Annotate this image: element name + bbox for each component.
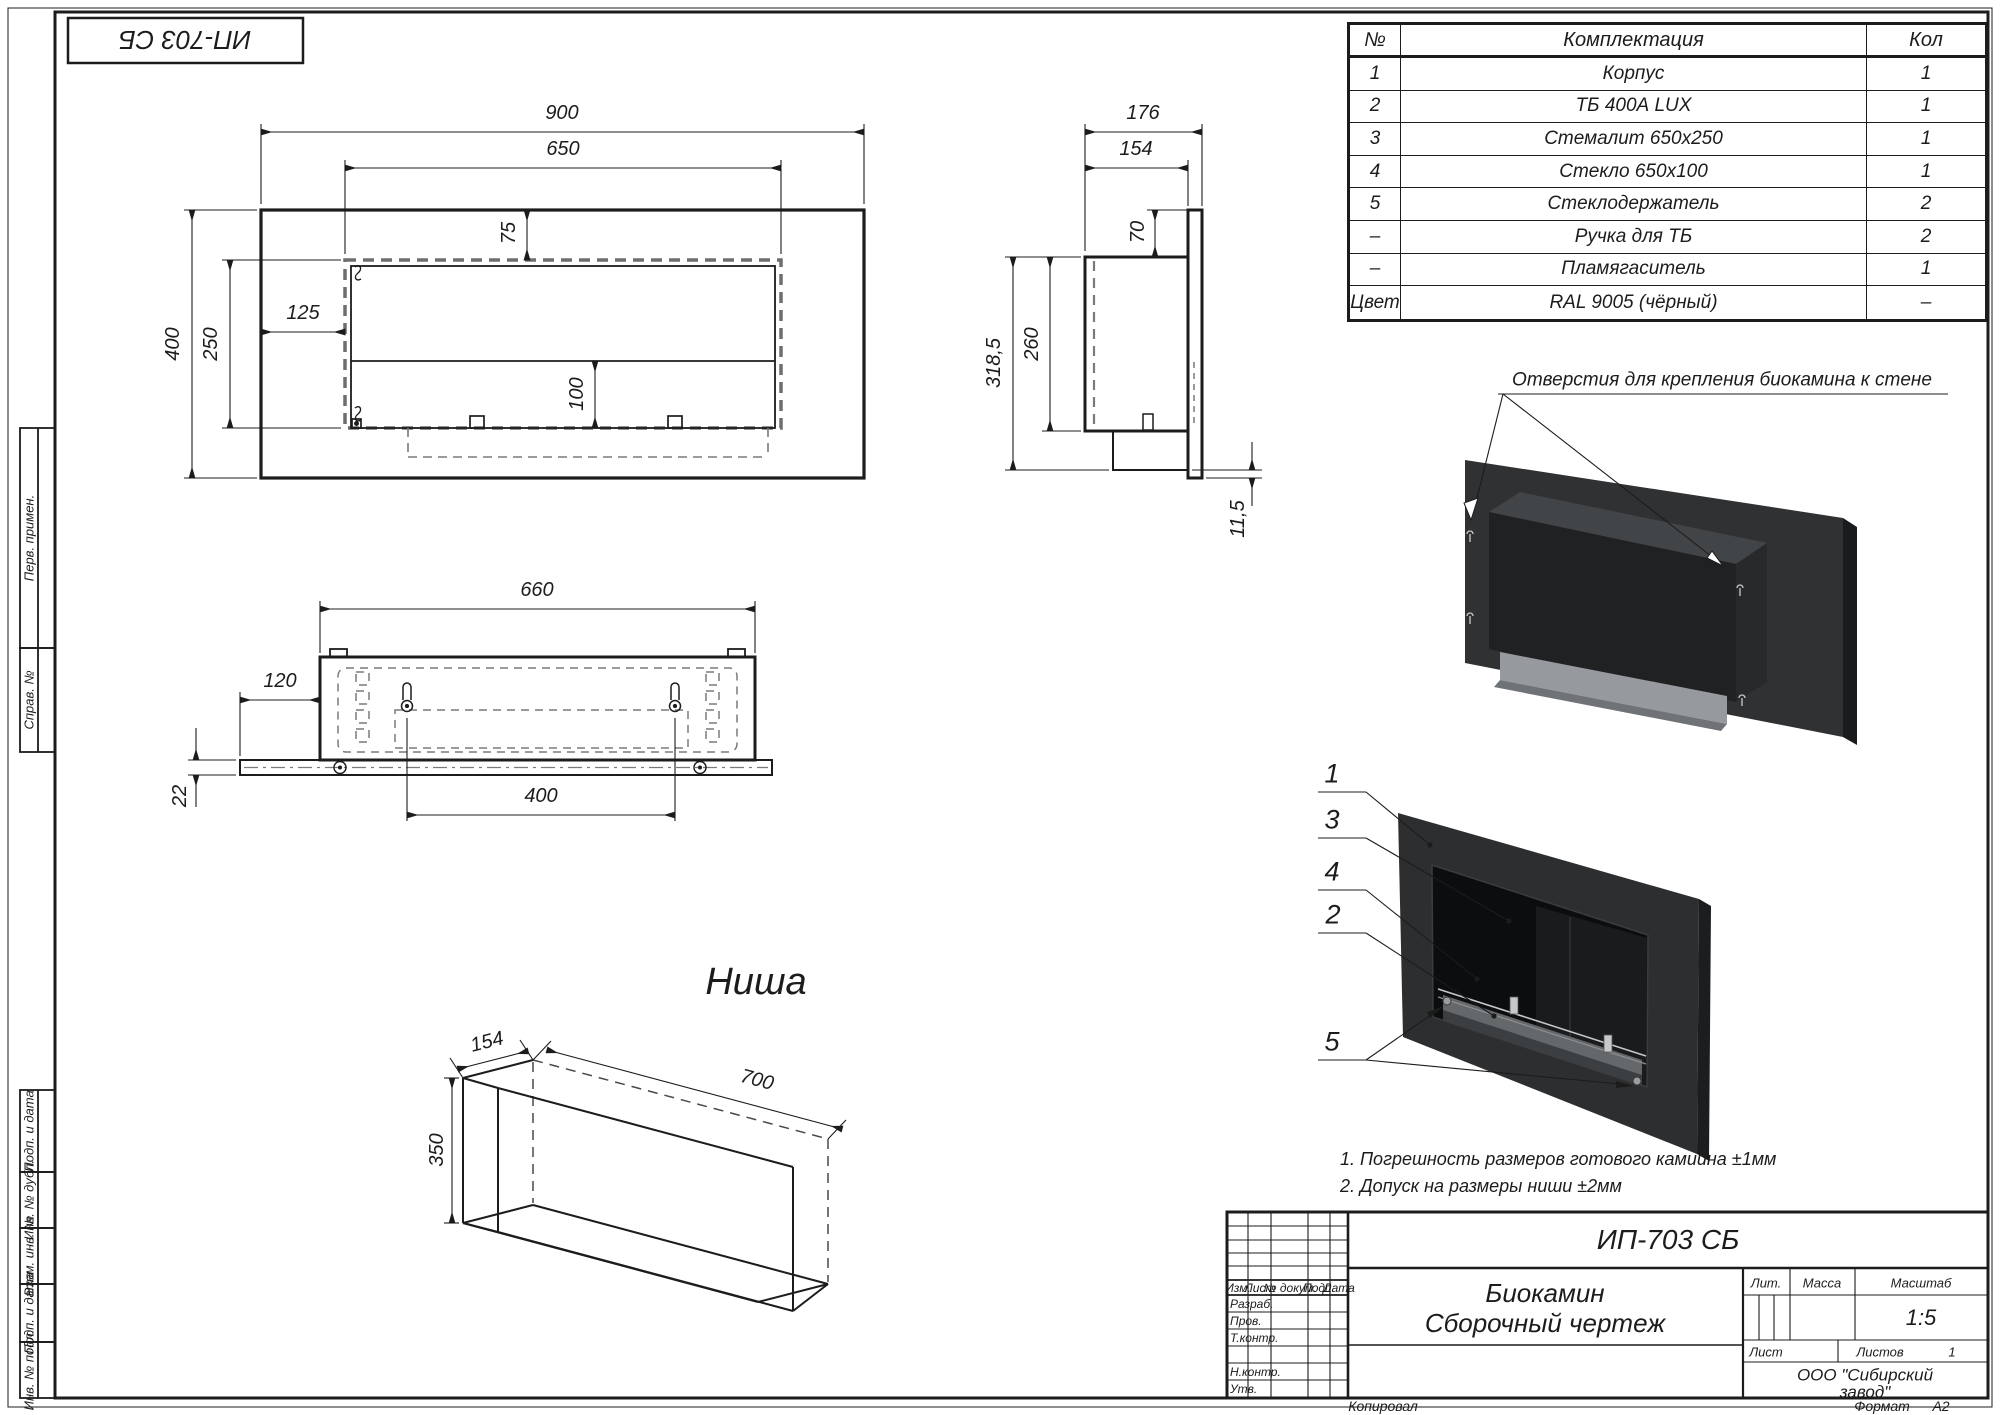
titleblock-row-nkontr: Н.контр.: [1230, 1366, 1281, 1378]
table-cell: 1: [1867, 156, 1985, 189]
titleblock-doc-number: ИП-703 СБ: [1597, 1226, 1740, 1254]
table-cell: Цвет: [1350, 286, 1401, 319]
stamp-doc-number: ИП-703 СБ: [119, 27, 251, 53]
table-cell: 2: [1350, 91, 1401, 124]
dim-120: 120: [263, 671, 296, 691]
titleblock-sheet-label: Лист: [1749, 1346, 1782, 1359]
table-cell: Стемалит 650х250: [1401, 123, 1867, 156]
titleblock-org-line1: ООО "Сибирский: [1797, 1367, 1933, 1384]
drawing-sheet: ИП-703 СБ № Комплектация Кол 1 Корпус 1 …: [0, 0, 2000, 1415]
niche-view-title: Ниша: [705, 963, 806, 1001]
titleblock-scale-label: Масштаб: [1891, 1277, 1952, 1290]
parts-col-num: №: [1350, 25, 1401, 58]
table-cell: 5: [1350, 188, 1401, 221]
table-cell: 1: [1867, 58, 1985, 91]
table-cell: 3: [1350, 123, 1401, 156]
titleblock-sheets-value: 1: [1948, 1346, 1955, 1359]
table-cell: Стеклодержатель: [1401, 188, 1867, 221]
note-1: 1. Погрешность размеров готового камиина…: [1340, 1150, 1776, 1168]
dim-650: 650: [546, 139, 579, 159]
callout-1: 1: [1324, 761, 1339, 788]
dim-22: 22: [170, 785, 190, 807]
dim-250: 250: [201, 327, 221, 360]
dim-125: 125: [286, 303, 319, 323]
titleblock-doc-type: Сборочный чертеж: [1425, 1310, 1665, 1336]
dim-400: 400: [163, 327, 183, 360]
dim-70: 70: [1128, 221, 1148, 243]
table-cell: 1: [1350, 58, 1401, 91]
dim-400-mount: 400: [524, 786, 557, 806]
copied-label: Копировал: [1348, 1399, 1418, 1413]
dim-75: 75: [499, 222, 519, 244]
dim-260: 260: [1022, 327, 1042, 360]
table-cell: 4: [1350, 156, 1401, 189]
table-cell: 2: [1867, 221, 1985, 254]
titleblock-row-utv: Утв.: [1230, 1383, 1257, 1395]
titleblock-mass-label: Масса: [1803, 1277, 1841, 1290]
side-view-linework: [1005, 124, 1262, 506]
titleblock-sheets-label: Листов: [1856, 1346, 1903, 1359]
parts-col-name: Комплектация: [1401, 25, 1867, 58]
mount-holes-callout: Отверстия для крепления биокамина к стен…: [1512, 371, 1932, 390]
callout-5: 5: [1324, 1029, 1339, 1056]
table-cell: Пламягаситель: [1401, 254, 1867, 287]
table-cell: 1: [1867, 123, 1985, 156]
titleblock-row-tkontr: Т.контр.: [1230, 1332, 1278, 1344]
dim-176: 176: [1126, 103, 1159, 123]
titleblock-scale-value: 1:5: [1906, 1307, 1937, 1329]
margin-label-inv-podl: Инв. № подл.: [23, 1330, 36, 1411]
margin-label-sprav-no: Справ. №: [23, 670, 36, 729]
table-cell: –: [1867, 286, 1985, 319]
dim-11-5: 11,5: [1228, 500, 1248, 537]
parts-table: № Комплектация Кол 1 Корпус 1 2 ТБ 400А …: [1347, 22, 1988, 322]
dim-154: 154: [1119, 139, 1152, 159]
dim-niche-350: 350: [427, 1133, 447, 1166]
table-cell: 2: [1867, 188, 1985, 221]
front-3d-render: [1318, 792, 1711, 1161]
dim-900: 900: [545, 103, 578, 123]
note-2: 2. Допуск на размеры ниши ±2мм: [1340, 1177, 1622, 1195]
parts-col-qty: Кол: [1867, 25, 1985, 58]
dim-100: 100: [567, 377, 587, 410]
back-3d-render: [1464, 394, 1948, 745]
table-cell: 1: [1867, 91, 1985, 124]
titleblock-col-data: Дата: [1323, 1282, 1355, 1294]
callout-2: 2: [1325, 902, 1340, 929]
table-cell: –: [1350, 221, 1401, 254]
format-value: А2: [1932, 1399, 1949, 1413]
margin-label-perv-primen: Перв. примен.: [23, 495, 36, 581]
dim-318-5: 318,5: [984, 338, 1004, 388]
front-view-linework: [184, 124, 864, 478]
table-cell: Корпус: [1401, 58, 1867, 91]
callout-4: 4: [1324, 859, 1339, 886]
callout-3: 3: [1324, 807, 1339, 834]
table-cell: Ручка для ТБ: [1401, 221, 1867, 254]
table-cell: –: [1350, 254, 1401, 287]
table-cell: RAL 9005 (чёрный): [1401, 286, 1867, 319]
table-cell: Стекло 650х100: [1401, 156, 1867, 189]
table-cell: 1: [1867, 254, 1985, 287]
titleblock-row-prov: Пров.: [1230, 1315, 1262, 1327]
dim-660: 660: [520, 580, 553, 600]
niche-isometric-linework: [444, 1040, 846, 1311]
bottom-view-linework: [188, 601, 772, 821]
table-cell: ТБ 400А LUX: [1401, 91, 1867, 124]
format-label: Формат: [1854, 1399, 1910, 1413]
titleblock-lit-label: Лит.: [1751, 1277, 1781, 1290]
titleblock-row-razrab: Разраб.: [1230, 1298, 1273, 1310]
titleblock-product: Биокамин: [1485, 1280, 1604, 1306]
